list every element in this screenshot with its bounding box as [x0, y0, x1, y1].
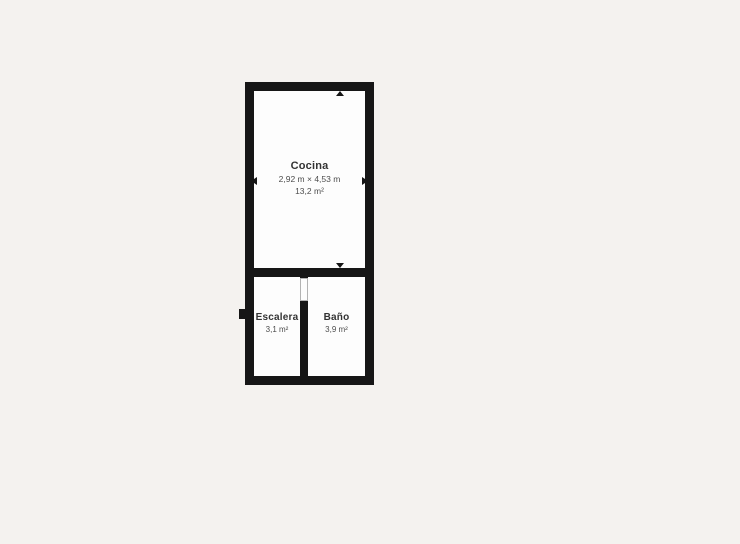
floorplan-canvas: { "colors": { "background": "#f4f2ef", "… — [0, 0, 740, 544]
room-cocina-name: Cocina — [254, 160, 365, 173]
wall-notch — [239, 309, 246, 319]
room-bano-label-block: Baño 3,9 m² — [308, 311, 365, 336]
dimension-arrow-down-icon — [336, 263, 344, 268]
wall-divider-horizontal — [245, 268, 374, 277]
wall-top — [245, 82, 374, 91]
wall-right — [365, 82, 374, 385]
floorplan: Cocina 2,92 m × 4,53 m 13,2 m² Escalera … — [245, 82, 374, 385]
door[interactable] — [300, 278, 308, 301]
wall-left — [245, 82, 254, 385]
room-cocina-label-block: Cocina 2,92 m × 4,53 m 13,2 m² — [254, 160, 365, 197]
dimension-arrow-up-icon — [336, 91, 344, 96]
room-escalera-name: Escalera — [254, 311, 300, 324]
room-escalera-area: 3,1 m² — [254, 324, 300, 336]
room-cocina-area: 13,2 m² — [254, 185, 365, 197]
room-bano-name: Baño — [308, 311, 365, 324]
room-cocina-dimensions: 2,92 m × 4,53 m — [254, 173, 365, 185]
wall-bottom — [245, 376, 374, 385]
room-escalera-label-block: Escalera 3,1 m² — [254, 311, 300, 336]
room-bano-area: 3,9 m² — [308, 324, 365, 336]
